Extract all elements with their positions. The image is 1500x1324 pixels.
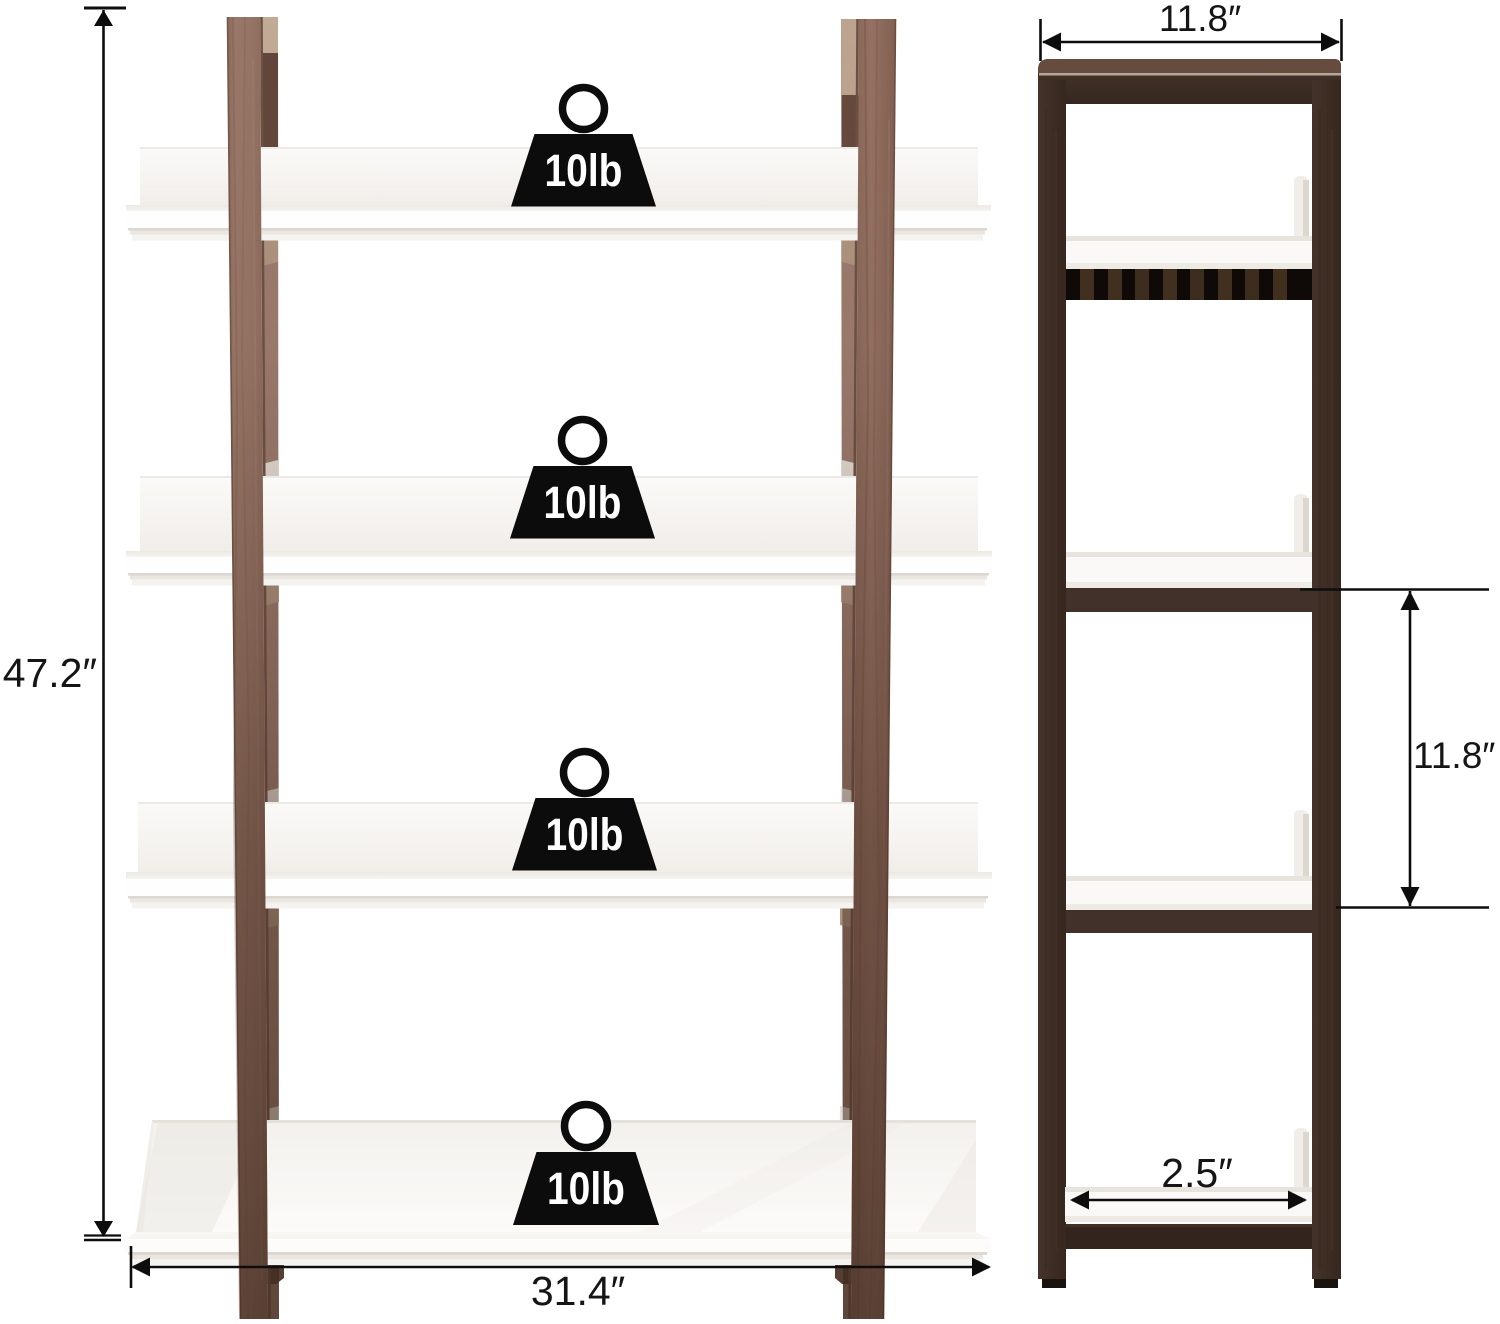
svg-text:31.4″: 31.4″: [531, 1268, 625, 1314]
svg-text:10lb: 10lb: [546, 809, 624, 860]
svg-text:11.8″: 11.8″: [1159, 0, 1241, 39]
svg-text:10lb: 10lb: [544, 477, 622, 528]
svg-text:10lb: 10lb: [547, 1163, 625, 1214]
svg-text:47.2″: 47.2″: [3, 650, 97, 696]
svg-text:10lb: 10lb: [545, 145, 623, 196]
svg-text:2.5″: 2.5″: [1161, 1150, 1233, 1196]
svg-text:11.8″: 11.8″: [1413, 735, 1495, 776]
